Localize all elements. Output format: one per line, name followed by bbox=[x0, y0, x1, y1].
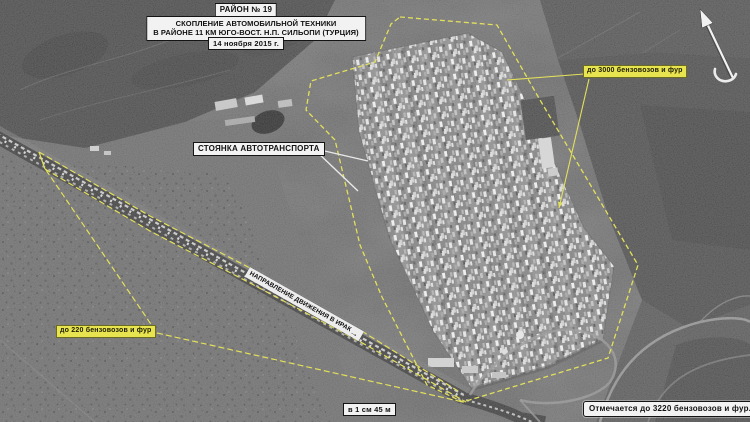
parking-callout-label: СТОЯНКА АВТОТРАНСПОРТА bbox=[193, 142, 325, 156]
satellite-recon-image: РАЙОН № 19 СКОПЛЕНИЕ АВТОМОБИЛЬНОЙ ТЕХНИ… bbox=[0, 0, 750, 422]
scale-label: в 1 см 45 м bbox=[343, 403, 396, 416]
region-number-label: РАЙОН № 19 bbox=[215, 3, 277, 17]
terrain bbox=[0, 0, 750, 422]
count-northeast-label: до 3000 бензовозов и фур bbox=[583, 65, 687, 78]
title-line-1: СКОПЛЕНИЕ АВТОМОБИЛЬНОЙ ТЕХНИКИ bbox=[153, 19, 359, 28]
total-count-label: Отмечается до 3220 бензовозов и фур. bbox=[583, 401, 750, 417]
count-southwest-label: до 220 бензовозов и фур bbox=[56, 325, 156, 338]
satellite-background bbox=[0, 0, 750, 422]
date-label: 14 ноября 2015 г. bbox=[208, 37, 284, 50]
